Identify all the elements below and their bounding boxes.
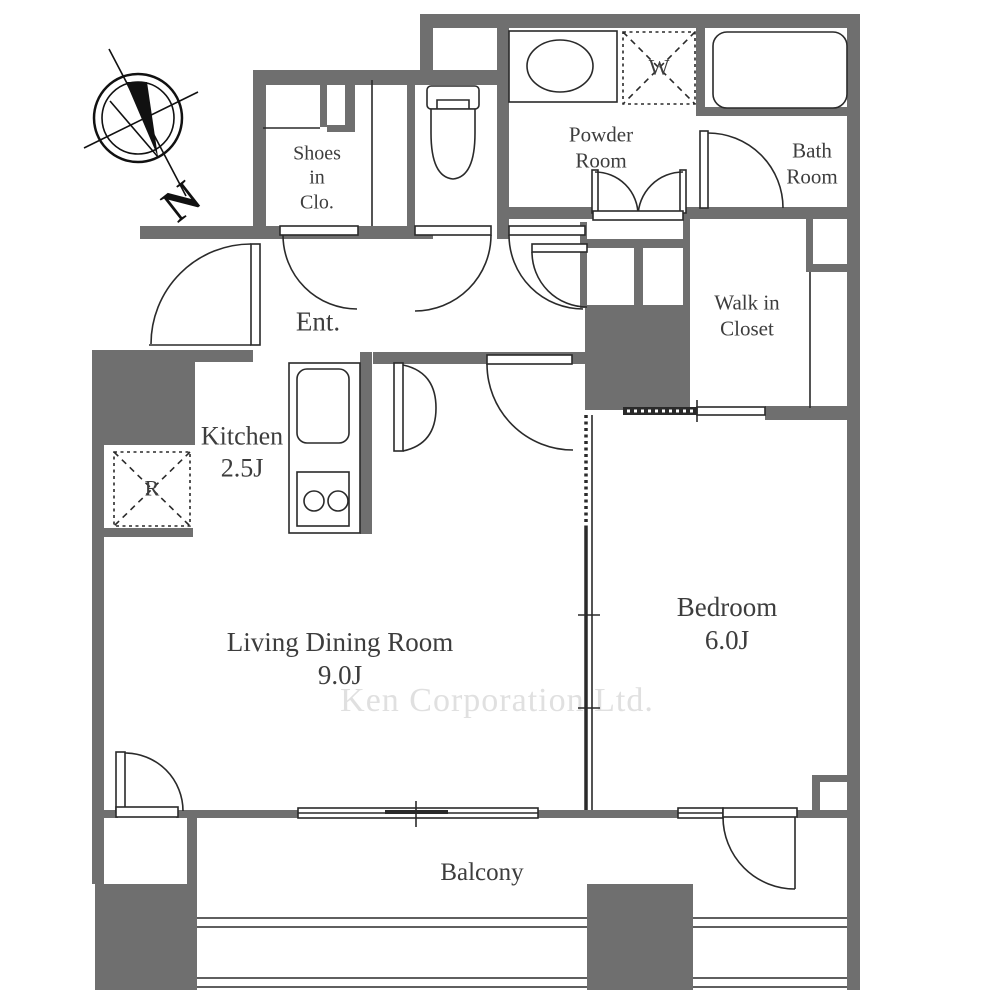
room-label-kitchen: Kitchen 2.5J — [201, 420, 283, 483]
compass-needle — [126, 82, 158, 157]
living-room-window — [298, 801, 538, 827]
living-balcony-door — [116, 752, 183, 817]
bath-room-door — [700, 131, 783, 208]
kitchen-sink — [297, 369, 349, 443]
balcony-railing — [197, 918, 847, 987]
entry-door — [149, 244, 260, 345]
room-label-powder-room: Powder Room — [569, 122, 633, 173]
living-room-door — [487, 355, 573, 450]
walls — [92, 14, 860, 990]
room-label-bedroom: Bedroom 6.0J — [677, 591, 778, 657]
room-label-balcony: Balcony — [440, 858, 523, 889]
kitchen-counter — [289, 363, 360, 533]
bedroom-sliding-partition — [578, 415, 600, 810]
room-label-shoes-closet: Shoes in Clo. — [293, 141, 341, 214]
refrigerator-letter: R — [145, 476, 160, 503]
kitchen-folding-door — [394, 363, 436, 451]
corridor-door — [532, 244, 587, 307]
washing-machine-letter: W — [649, 55, 670, 82]
room-label-bath-room: Bath Room — [786, 138, 837, 189]
powder-sink-counter — [509, 31, 617, 102]
room-label-entrance: Ent. — [296, 306, 340, 339]
bathtub — [713, 32, 847, 108]
bedroom-balcony-door — [723, 808, 797, 889]
balcony-left-block — [95, 884, 197, 990]
powder-room-double-door — [592, 170, 686, 220]
floor-plan: Ken Corporation Ltd. — [0, 0, 1000, 1000]
balcony-center-block — [587, 884, 693, 990]
kitchen-column-block — [95, 355, 195, 445]
hall-door — [509, 226, 585, 309]
bedroom-window — [678, 808, 723, 818]
pipe-shaft-block — [585, 305, 690, 410]
toilet — [427, 86, 479, 179]
room-label-walk-in-closet: Walk in Closet — [714, 290, 779, 341]
room-label-living-dining: Living Dining Room 9.0J — [227, 626, 454, 692]
